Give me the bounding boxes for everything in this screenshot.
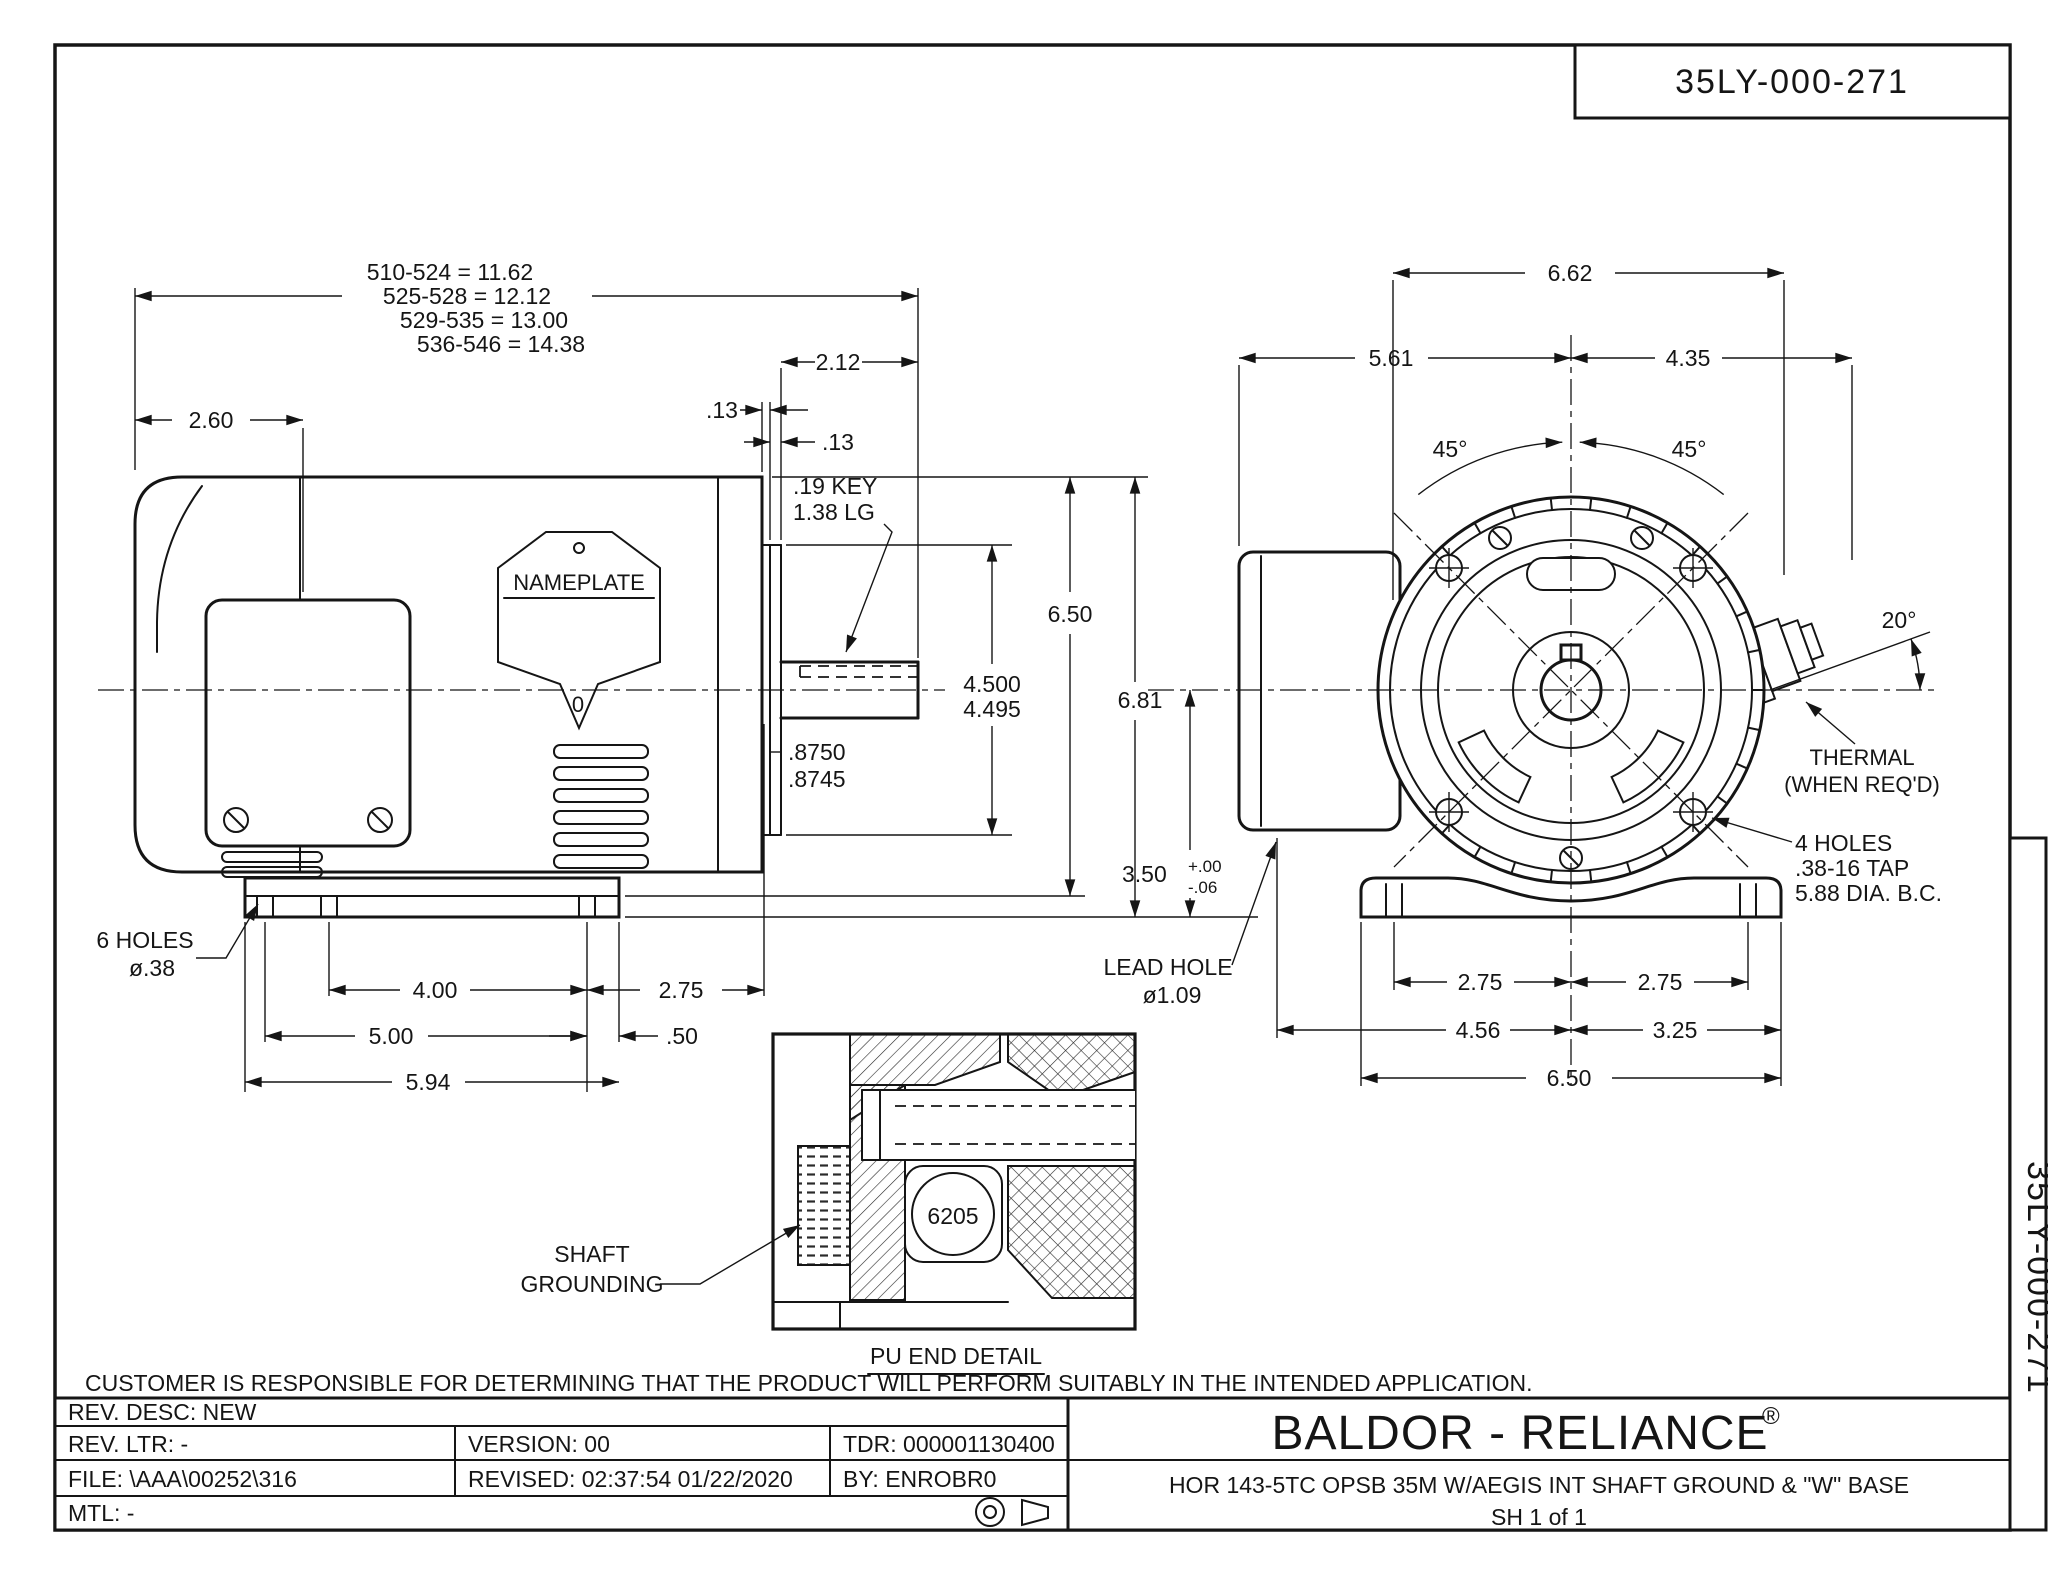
holes-note-1: 6 HOLES <box>96 927 193 953</box>
tol-minus: -.06 <box>1188 878 1217 897</box>
revised-by: BY: ENROBR0 <box>843 1466 996 1492</box>
thermal-note-2: (WHEN REQ'D) <box>1784 772 1940 797</box>
stack-dim-1: 510-524 = 11.62 <box>367 259 533 285</box>
dim-4500: 4.500 <box>963 671 1021 697</box>
dim-275-side: 2.75 <box>659 977 704 1003</box>
dim-681: 6.81 <box>1118 687 1163 713</box>
drawing-number-top: 35LY-000-271 <box>1675 63 1909 101</box>
conduit-box-end <box>1239 552 1400 830</box>
key-note-2: 1.38 LG <box>793 499 875 525</box>
dim-650-vert: 6.50 <box>1048 601 1093 627</box>
dim-400: 4.00 <box>413 977 458 1003</box>
dim-662: 6.62 <box>1548 260 1593 286</box>
tdr: TDR: 000001130400 <box>843 1431 1055 1457</box>
angle-45-left: 45° <box>1433 436 1468 462</box>
tap-note-1: 4 HOLES <box>1795 830 1892 856</box>
tap-note-2: .38-16 TAP <box>1795 855 1909 881</box>
dim-650-base: 6.50 <box>1547 1065 1592 1091</box>
dim-594: 5.94 <box>406 1069 451 1095</box>
tol-plus: +.00 <box>1188 857 1222 876</box>
angle-45-right: 45° <box>1672 436 1707 462</box>
dim-325: 3.25 <box>1653 1017 1698 1043</box>
dim-275-right: 2.75 <box>1638 969 1683 995</box>
dim-050: .50 <box>666 1023 698 1049</box>
dim-456: 4.56 <box>1456 1017 1501 1043</box>
dim-561: 5.61 <box>1369 345 1414 371</box>
lead-hole-1: LEAD HOLE <box>1103 954 1232 980</box>
rev-desc: REV. DESC: NEW <box>68 1399 257 1425</box>
brand-registered-icon: ® <box>1762 1403 1780 1430</box>
lead-hole-2: ø1.09 <box>1143 982 1202 1008</box>
dim-4495: 4.495 <box>963 696 1021 722</box>
side-view-object: NAMEPLATE 0 <box>98 477 945 917</box>
stack-dim-3: 529-535 = 13.00 <box>400 307 568 333</box>
end-view-object <box>1148 335 1940 1085</box>
brand-title: BALDOR - RELIANCE <box>1271 1407 1768 1460</box>
dim-500: 5.00 <box>369 1023 414 1049</box>
dim-13b: .13 <box>822 429 854 455</box>
shaft-grounding-label-2: GROUNDING <box>520 1271 663 1297</box>
dim-275-left: 2.75 <box>1458 969 1503 995</box>
disclaimer-text: CUSTOMER IS RESPONSIBLE FOR DETERMINING … <box>85 1370 1533 1396</box>
rev-ltr: REV. LTR: - <box>68 1431 188 1457</box>
product-description: HOR 143-5TC OPSB 35M W/AEGIS INT SHAFT G… <box>1169 1472 1909 1498</box>
title-block: REV. DESC: NEW REV. LTR: - VERSION: 00 T… <box>55 1398 2010 1530</box>
dim-350: 3.50 <box>1122 861 1167 887</box>
vent-louvers <box>554 745 648 868</box>
shaft-grounding-ring <box>798 1146 850 1265</box>
dim-8745: .8745 <box>788 766 846 792</box>
stack-dim-2: 525-528 = 12.12 <box>383 283 551 309</box>
holes-note-2: ø.38 <box>129 955 175 981</box>
file-path: FILE: \AAA\00252\316 <box>68 1466 297 1492</box>
bearing-number: 6205 <box>927 1203 978 1229</box>
version: VERSION: 00 <box>468 1431 610 1457</box>
shaft-grounding-label-1: SHAFT <box>554 1241 629 1267</box>
nameplate-zero: 0 <box>572 692 584 717</box>
dim-435: 4.35 <box>1666 345 1711 371</box>
stack-dim-4: 536-546 = 14.38 <box>417 331 585 357</box>
sheet-number: SH 1 of 1 <box>1491 1504 1587 1530</box>
drawing-sheet: 35LY-000-271 35LY-000-271 NAMEPLATE 0 <box>0 0 2048 1582</box>
dim-8750: .8750 <box>788 739 846 765</box>
revised-timestamp: REVISED: 02:37:54 01/22/2020 <box>468 1466 793 1492</box>
dim-13a: .13 <box>706 397 738 423</box>
mtl: MTL: - <box>68 1500 134 1526</box>
w-base-side <box>245 878 619 917</box>
dim-2-60: 2.60 <box>189 407 234 433</box>
tap-note-3: 5.88 DIA. B.C. <box>1795 880 1942 906</box>
engineering-drawing: 35LY-000-271 35LY-000-271 NAMEPLATE 0 <box>0 0 2048 1582</box>
detail-caption: PU END DETAIL <box>870 1343 1042 1369</box>
angle-20: 20° <box>1882 607 1917 633</box>
nameplate: NAMEPLATE 0 <box>498 532 660 728</box>
pu-end-detail: 6205 SHAFT GROUNDING PU END DETAIL <box>520 1034 1135 1374</box>
drawing-number-side: 35LY-000-271 <box>2020 1161 2048 1395</box>
thermal-note-1: THERMAL <box>1809 745 1914 770</box>
nameplate-label: NAMEPLATE <box>513 570 645 595</box>
dim-2-12: 2.12 <box>816 349 861 375</box>
